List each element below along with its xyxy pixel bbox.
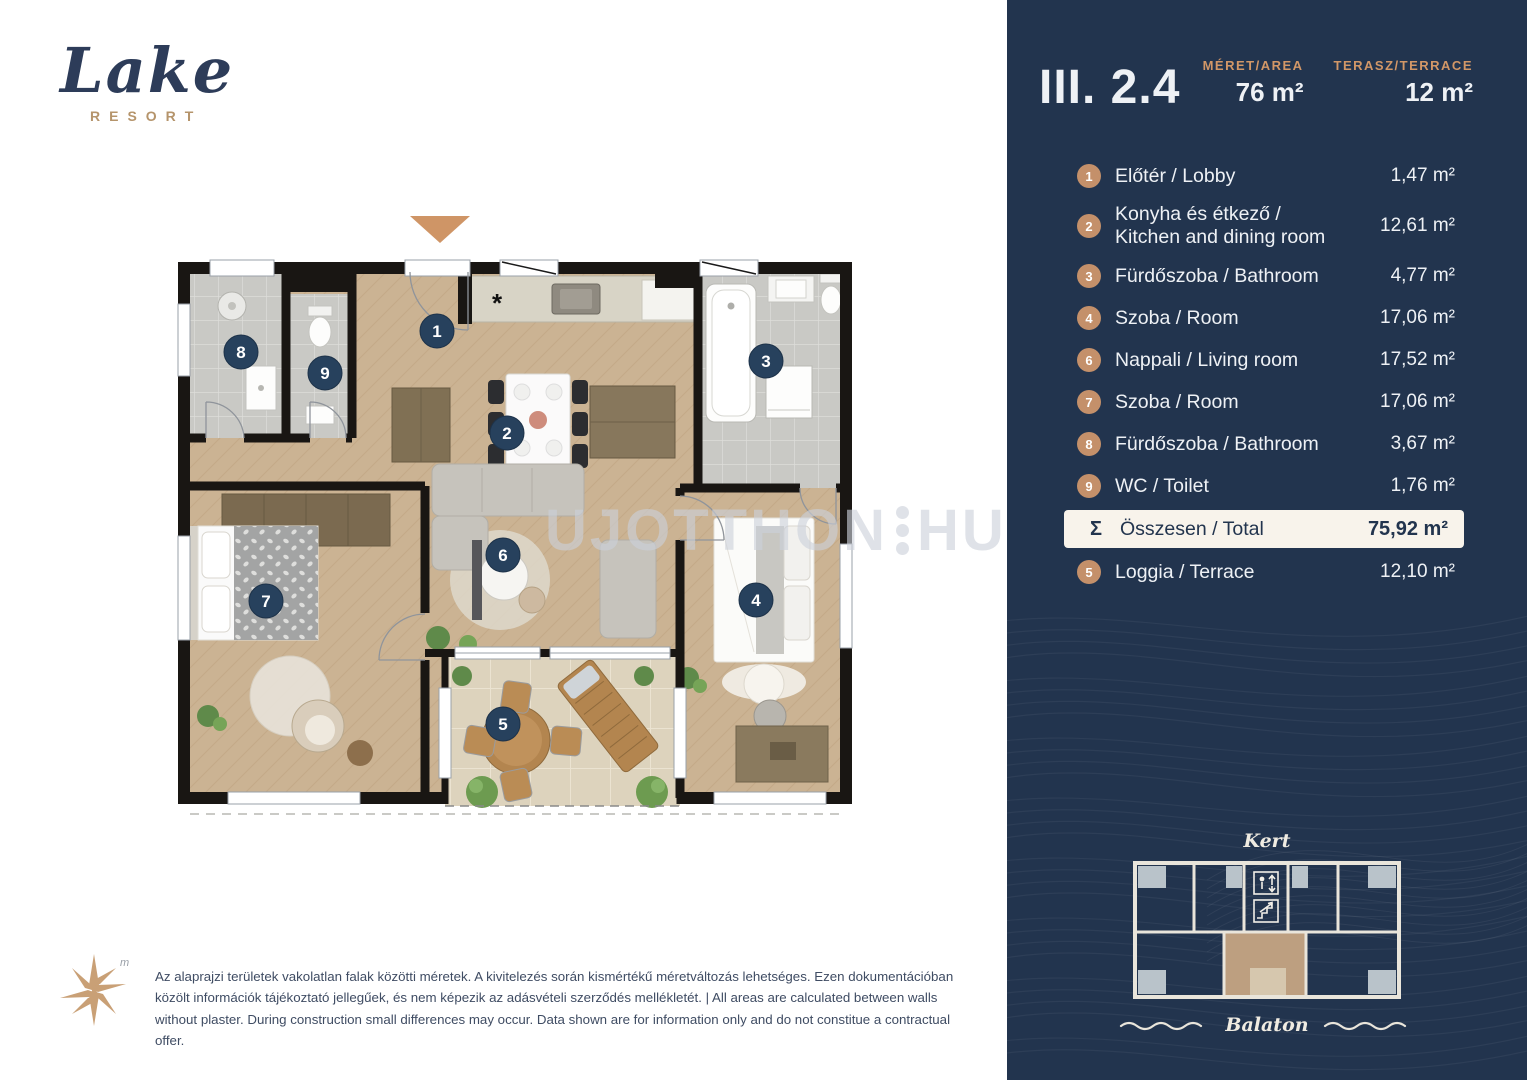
room-area-value: 1,76 m²	[1391, 475, 1455, 497]
room-label: WC / Toilet	[1115, 475, 1391, 498]
plan-badge-number: 5	[498, 715, 507, 734]
info-panel: III. 2.4 MÉRET/AREA 76 m² TERASZ/TERRACE…	[1007, 0, 1527, 1080]
terrace-value: 12 m²	[1334, 77, 1473, 108]
room-row: 1 Előtér / Lobby 1,47 m²	[1007, 155, 1527, 197]
terrace-column: TERASZ/TERRACE 12 m²	[1334, 58, 1473, 108]
minimap-balaton-label: Balaton	[1225, 1014, 1308, 1036]
room-area-value: 75,92 m²	[1368, 518, 1448, 541]
total-row: Σ Összesen / Total 75,92 m²	[1064, 510, 1464, 548]
terrace-label: TERASZ/TERRACE	[1334, 58, 1473, 73]
room-number-badge: Σ	[1084, 517, 1108, 541]
room-label: Loggia / Terrace	[1115, 561, 1380, 584]
room-number-badge: 8	[1077, 432, 1101, 456]
wave-right-icon	[1323, 1019, 1415, 1031]
plan-badge-number: 6	[498, 546, 507, 565]
room-area-value: 1,47 m²	[1391, 165, 1455, 187]
room-label: Előtér / Lobby	[1115, 165, 1391, 188]
room-number-badge: 5	[1077, 560, 1101, 584]
room-label: Fürdőszoba / Bathroom	[1115, 433, 1391, 456]
room-area-value: 4,77 m²	[1391, 265, 1455, 287]
wall-stub-hall	[458, 272, 472, 324]
logo-name: Lake	[60, 40, 320, 102]
wave-left-icon	[1119, 1019, 1211, 1031]
building-plan	[1132, 860, 1402, 1000]
cooktop-symbol: *	[492, 288, 503, 318]
balaton-row: Balaton	[1007, 1014, 1527, 1036]
room-label: Összesen / Total	[1120, 518, 1368, 541]
room-number-badge: 1	[1077, 164, 1101, 188]
room-label: Konyha és étkező / Kitchen and dining ro…	[1115, 203, 1380, 249]
room-number-badge: 4	[1077, 306, 1101, 330]
room-label: Szoba / Room	[1115, 307, 1380, 330]
room-area-value: 12,10 m²	[1380, 561, 1455, 583]
room-number-badge: 3	[1077, 264, 1101, 288]
room-number-badge: 6	[1077, 348, 1101, 372]
room-row: 5 Loggia / Terrace 12,10 m²	[1007, 551, 1527, 593]
entrance-arrow	[410, 216, 470, 243]
plan-badge-number: 2	[502, 424, 511, 443]
room-number-badge: 9	[1077, 474, 1101, 498]
ujotthon-watermark: UJOTTHON HU	[545, 494, 1007, 566]
plan-badge-number: 9	[320, 364, 329, 383]
building-minimap: Kert	[1007, 830, 1527, 1036]
room-area-value: 17,52 m²	[1380, 349, 1455, 371]
room-area-value: 12,61 m²	[1380, 215, 1455, 237]
room-list: 1 Előtér / Lobby 1,47 m² 2 Konyha és étk…	[1007, 155, 1527, 593]
area-column: MÉRET/AREA 76 m²	[1203, 58, 1304, 108]
room-number-badge: 7	[1077, 390, 1101, 414]
area-value: 76 m²	[1203, 77, 1304, 108]
room-row: 7 Szoba / Room 17,06 m²	[1007, 381, 1527, 423]
compass-icon: m	[52, 948, 136, 1032]
unit-header: III. 2.4 MÉRET/AREA 76 m² TERASZ/TERRACE…	[1039, 58, 1473, 112]
wall-stub-kitchen	[655, 262, 698, 288]
room-label: Szoba / Room	[1115, 391, 1380, 414]
minimap-highlighted-terrace	[1250, 968, 1286, 995]
room-row: 9 WC / Toilet 1,76 m²	[1007, 465, 1527, 507]
watermark-dots-icon	[896, 506, 909, 555]
stairs-icon	[1254, 900, 1278, 922]
room-area-value: 17,06 m²	[1380, 307, 1455, 329]
room-row: 3 Fürdőszoba / Bathroom 4,77 m²	[1007, 255, 1527, 297]
room-label: Nappali / Living room	[1115, 349, 1380, 372]
room-row: 4 Szoba / Room 17,06 m²	[1007, 297, 1527, 339]
brochure-page: Lake RESORT	[0, 0, 1527, 1080]
logo-subtitle: RESORT	[90, 108, 320, 124]
plan-badge-number: 7	[261, 592, 270, 611]
plan-badge-number: 4	[751, 591, 761, 610]
svg-text:m: m	[120, 957, 129, 969]
disclaimer-text: Az alaprajzi területek vakolatlan falak …	[155, 966, 967, 1051]
room-label: Fürdőszoba / Bathroom	[1115, 265, 1391, 288]
wall-niche	[288, 264, 352, 292]
plan-badge-number: 3	[761, 352, 770, 371]
unit-id: III. 2.4	[1039, 64, 1180, 112]
room-row: 8 Fürdőszoba / Bathroom 3,67 m²	[1007, 423, 1527, 465]
room-row: 6 Nappali / Living room 17,52 m²	[1007, 339, 1527, 381]
plan-badge-number: 8	[236, 343, 245, 362]
watermark-text-1: UJOTTHON	[545, 497, 888, 564]
room-area-value: 17,06 m²	[1380, 391, 1455, 413]
room-area-value: 3,67 m²	[1391, 433, 1455, 455]
watermark-text-2: HU	[917, 497, 1007, 564]
plan-badge-number: 1	[432, 322, 441, 341]
room-number-badge: 2	[1077, 214, 1101, 238]
elevator-icon	[1254, 872, 1278, 894]
area-label: MÉRET/AREA	[1203, 58, 1304, 73]
minimap-kert-label: Kert	[1007, 830, 1527, 852]
lake-resort-logo: Lake RESORT	[60, 40, 320, 124]
room-row: 2 Konyha és étkező / Kitchen and dining …	[1007, 197, 1527, 255]
